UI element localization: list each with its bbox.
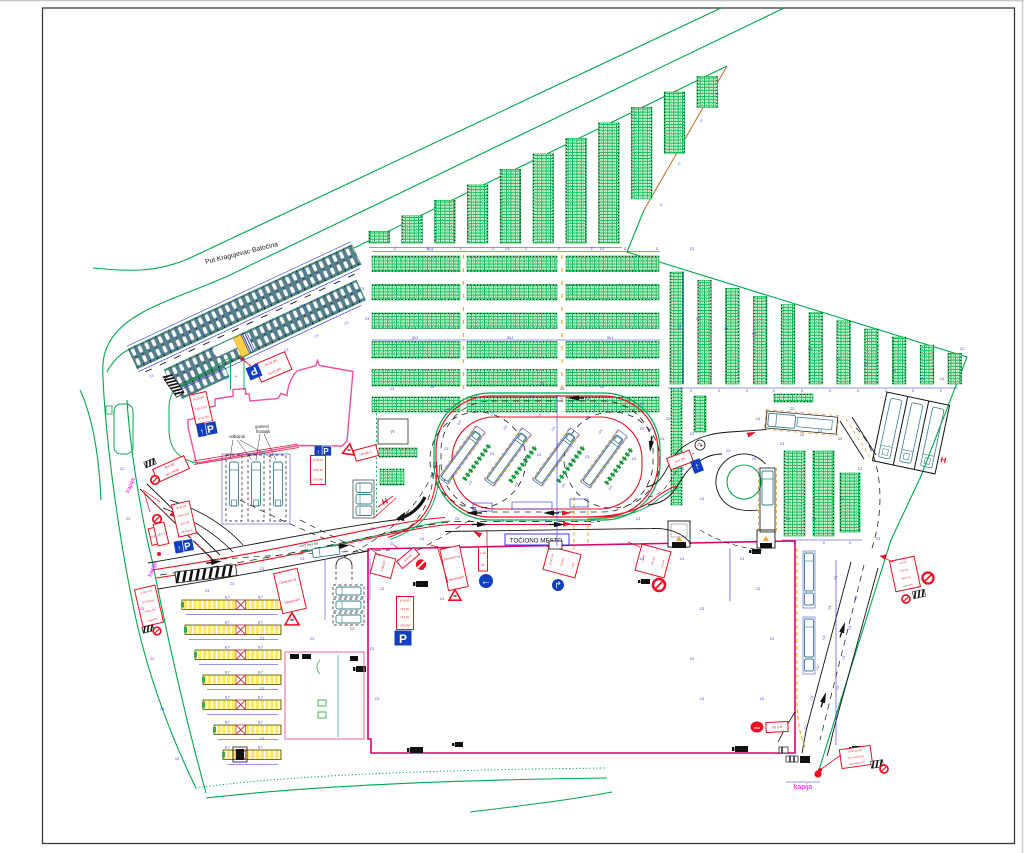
svg-text:C3: C3 (786, 517, 790, 521)
svg-text:C3: C3 (780, 442, 784, 446)
svg-text:kapija: kapija (794, 784, 812, 791)
svg-text:C3: C3 (420, 567, 424, 571)
svg-text:C3: C3 (365, 317, 369, 321)
svg-text:P: P (399, 632, 407, 646)
svg-text:C3: C3 (444, 447, 448, 451)
svg-text:C3: C3 (230, 582, 234, 586)
svg-text:C3: C3 (876, 537, 880, 541)
svg-text:30.2: 30.2 (412, 336, 419, 340)
svg-text:III-30 (P): III-30 (P) (313, 459, 323, 462)
svg-text:C3: C3 (752, 332, 756, 336)
svg-text:8.7: 8.7 (225, 621, 230, 625)
svg-text:C3: C3 (505, 247, 509, 251)
svg-text:C3: C3 (390, 387, 394, 391)
svg-text:UTOVAR: UTOVAR (313, 479, 323, 482)
svg-text:C3: C3 (836, 357, 840, 361)
svg-text:(P): (P) (481, 563, 485, 567)
svg-text:C3: C3 (808, 347, 812, 351)
svg-text:8.7: 8.7 (225, 746, 230, 750)
svg-text:C3: C3 (375, 697, 379, 701)
svg-text:C3: C3 (300, 557, 304, 561)
svg-text:C3: C3 (370, 527, 374, 531)
svg-text:C3: C3 (760, 697, 764, 701)
svg-text:UTOVAR: UTOVAR (400, 623, 411, 627)
svg-text:←: ← (481, 576, 492, 588)
svg-text:C3: C3 (800, 433, 804, 437)
svg-text:C3: C3 (690, 247, 694, 251)
svg-text:↱: ↱ (554, 580, 562, 590)
svg-text:C3: C3 (864, 362, 868, 366)
svg-text:C3: C3 (380, 587, 384, 591)
svg-text:C3: C3 (490, 452, 494, 456)
svg-text:C3: C3 (150, 657, 154, 661)
svg-text:C3: C3 (770, 637, 774, 641)
svg-text:C3: C3 (636, 517, 640, 521)
svg-text:C3: C3 (370, 647, 374, 651)
svg-text:C3: C3 (442, 397, 446, 401)
svg-text:C3: C3 (260, 637, 264, 641)
svg-text:C3: C3 (632, 457, 636, 461)
svg-text:C3: C3 (756, 417, 760, 421)
svg-text:C3: C3 (666, 417, 670, 421)
svg-text:↑: ↑ (317, 449, 320, 456)
svg-text:C3: C3 (140, 607, 144, 611)
svg-text:C3: C3 (700, 607, 704, 611)
svg-text:8.7: 8.7 (225, 646, 230, 650)
svg-text:C3: C3 (585, 455, 589, 459)
svg-text:P: P (323, 447, 329, 456)
svg-text:C3: C3 (696, 317, 700, 321)
svg-text:8.7: 8.7 (258, 721, 263, 725)
svg-text:C3: C3 (260, 567, 264, 571)
svg-text:C3: C3 (545, 519, 549, 523)
svg-text:C3: C3 (640, 402, 644, 406)
svg-text:IV-18 (P): IV-18 (P) (313, 469, 323, 472)
svg-text:8.7: 8.7 (258, 621, 263, 625)
svg-text:8.7: 8.7 (258, 746, 263, 750)
svg-text:C3: C3 (790, 407, 794, 411)
svg-text:(d) 2-N: (d) 2-N (772, 725, 783, 730)
svg-text:C3: C3 (440, 597, 444, 601)
svg-text:C3: C3 (475, 395, 479, 399)
svg-text:C3: C3 (590, 520, 594, 524)
svg-text:C3: C3 (260, 737, 264, 741)
svg-text:C3: C3 (740, 557, 744, 561)
svg-text:C3: C3 (430, 385, 434, 389)
svg-text:C3: C3 (160, 707, 164, 711)
svg-text:C3: C3 (640, 557, 644, 561)
svg-text:8.7: 8.7 (225, 596, 230, 600)
svg-text:C3: C3 (660, 437, 664, 441)
svg-text:C3: C3 (310, 637, 314, 641)
svg-text:C3: C3 (560, 387, 564, 391)
svg-text:C3: C3 (960, 347, 964, 351)
svg-text:30.1: 30.1 (607, 336, 614, 340)
svg-text:IV-5 (P): IV-5 (P) (401, 615, 410, 619)
svg-text:30.1: 30.1 (678, 323, 682, 330)
svg-text:C3: C3 (724, 327, 728, 331)
svg-text:III-30 (P): III-30 (P) (400, 599, 410, 603)
svg-text:C3: C3 (175, 757, 179, 761)
svg-text:8.7: 8.7 (258, 671, 263, 675)
svg-text:8.7: 8.7 (225, 696, 230, 700)
svg-text:C3: C3 (700, 497, 704, 501)
svg-text:↷: ↷ (697, 443, 703, 450)
svg-text:C3: C3 (838, 437, 842, 441)
svg-text:C3: C3 (840, 497, 844, 501)
svg-text:eko: eko (754, 725, 761, 730)
svg-text:C3: C3 (455, 517, 459, 521)
svg-text:C3: C3 (500, 519, 504, 523)
svg-text:C3: C3 (818, 429, 822, 433)
svg-text:70.2: 70.2 (427, 248, 434, 252)
svg-text:8.7: 8.7 (225, 671, 230, 675)
svg-text:C3: C3 (690, 432, 694, 436)
svg-text:C3: C3 (600, 247, 604, 251)
svg-text:C3: C3 (858, 467, 862, 471)
svg-text:C3: C3 (600, 385, 604, 389)
svg-text:C3: C3 (812, 517, 816, 521)
svg-text:C3: C3 (390, 542, 394, 546)
svg-text:C3: C3 (205, 589, 209, 593)
svg-text:⊥: ⊥ (233, 374, 238, 378)
svg-text:C3: C3 (780, 342, 784, 346)
svg-text:30.2: 30.2 (507, 336, 514, 340)
svg-text:C3: C3 (700, 697, 704, 701)
svg-text:C3: C3 (940, 377, 944, 381)
svg-text:C3: C3 (680, 467, 684, 471)
svg-text:C3: C3 (680, 557, 684, 561)
svg-text:C3: C3 (126, 517, 130, 521)
svg-text:odbojnik: odbojnik (229, 434, 246, 439)
svg-text:II-43: II-43 (480, 551, 486, 555)
svg-text:C3: C3 (650, 427, 654, 431)
svg-text:C3: C3 (640, 427, 644, 431)
svg-text:C3: C3 (290, 617, 294, 621)
svg-text:8.7: 8.7 (258, 596, 263, 600)
svg-text:C3: C3 (420, 537, 424, 541)
svg-text:C3: C3 (892, 369, 896, 373)
svg-text:C3: C3 (756, 587, 760, 591)
svg-text:C3: C3 (530, 395, 534, 399)
svg-text:C3: C3 (585, 397, 589, 401)
svg-text:C3: C3 (537, 453, 541, 457)
svg-text:hvataljk: hvataljk (256, 429, 271, 434)
svg-text:C3: C3 (260, 687, 264, 691)
svg-text:IV-6 (P): IV-6 (P) (401, 607, 410, 611)
svg-text:C3: C3 (540, 382, 544, 386)
svg-text:C3: C3 (350, 627, 354, 631)
svg-text:C3: C3 (726, 449, 730, 453)
svg-text:C3: C3 (360, 287, 364, 291)
svg-text:C3: C3 (690, 657, 694, 661)
svg-text:8.7: 8.7 (258, 696, 263, 700)
svg-text:8.7: 8.7 (258, 646, 263, 650)
svg-text:8.7: 8.7 (225, 721, 230, 725)
svg-text:C3: C3 (120, 467, 124, 471)
svg-text:C3: C3 (752, 457, 756, 461)
svg-text:C3: C3 (920, 377, 924, 381)
